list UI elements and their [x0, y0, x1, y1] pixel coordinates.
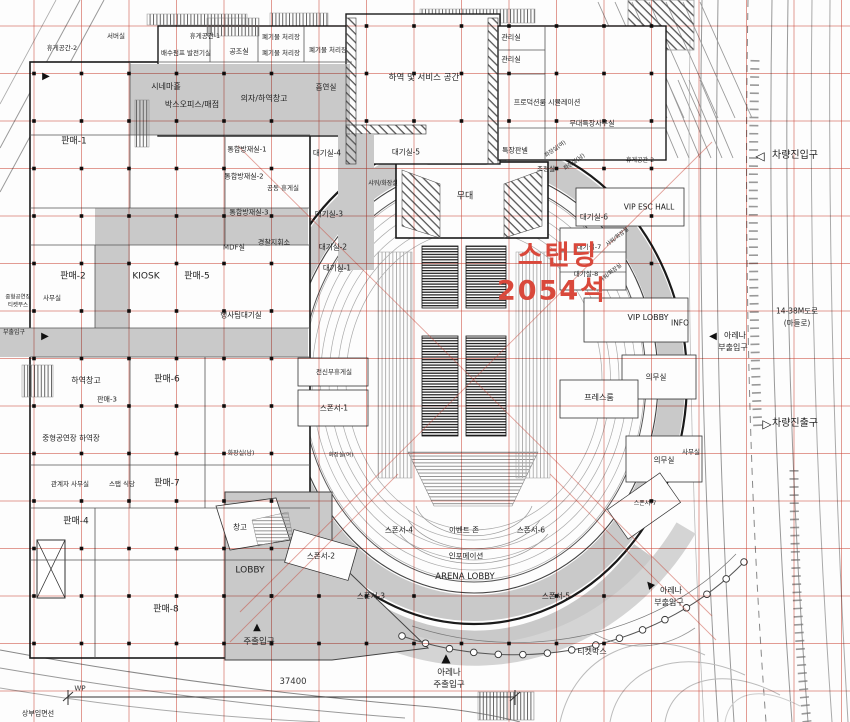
- plan-label: 화장실(여): [329, 453, 354, 459]
- plan-label: 시네마홀: [151, 83, 180, 91]
- plan-label: 휴게공간-2: [626, 158, 654, 164]
- plan-label: 휴게공간-1: [190, 33, 220, 40]
- plan-drawing: [0, 0, 850, 722]
- plan-label: 이벤트 존: [449, 526, 479, 534]
- plan-label: 통합방재실-2: [224, 174, 263, 181]
- plan-label: 대기실-1: [323, 264, 351, 272]
- plan-label: INFO: [671, 319, 689, 327]
- plan-label: 전신부휴게실: [316, 369, 352, 376]
- plan-label: 대기실-6: [580, 213, 608, 221]
- plan-label: 조정실: [537, 166, 555, 173]
- vehicle-entry-arrow-icon: ◁: [755, 150, 764, 162]
- plan-label: 대기실-4: [313, 149, 341, 157]
- plan-label: 티켓부스: [8, 303, 28, 309]
- standing-line2: 2054석: [497, 278, 607, 305]
- plan-label: 샤워/화장실: [368, 181, 398, 187]
- plan-label: 스탭 식당: [109, 481, 135, 488]
- plan-label: 특장판넬: [502, 148, 528, 155]
- dimension-wp-label: WP: [74, 686, 85, 693]
- plan-label: 폐기물 처리장: [262, 34, 300, 41]
- plan-label: 화장실(남): [228, 451, 255, 457]
- plan-label: 판매-4: [63, 518, 89, 527]
- dimension-value: 37400: [279, 678, 306, 687]
- plan-label: VIP LOBBY: [627, 314, 668, 322]
- plan-label: 스폰서-5: [542, 592, 570, 600]
- plan-label: 박스오피스/매점: [165, 101, 219, 109]
- plan-label: 하역 및 서비스 공간: [389, 74, 460, 83]
- plan-label: 사무실: [43, 295, 61, 302]
- plan-label: 휴게공간-2: [47, 45, 77, 52]
- plan-label: 사무실: [682, 449, 700, 456]
- plan-label: 판매-2: [60, 273, 86, 282]
- plan-label: 배수펌프 발전기실: [161, 50, 211, 57]
- plan-label: 차량진입구: [772, 151, 818, 161]
- plan-label: 부출입구: [654, 599, 683, 607]
- plan-label: 중형공연장 하역장: [42, 434, 100, 442]
- side-entrance-arrow-icon: ▶: [42, 72, 50, 82]
- plan-label: 부출입구: [3, 330, 25, 336]
- plan-label: 행사팀대기실: [220, 311, 261, 319]
- plan-label: 대기실-5: [392, 148, 420, 156]
- plan-label: 흡연실: [316, 83, 337, 91]
- plan-label: 판매-6: [154, 376, 180, 385]
- plan-label: 대기실-2: [319, 243, 347, 251]
- plan-label: 공동 휴게실: [267, 185, 299, 192]
- plan-label: 아레나: [660, 587, 682, 595]
- plan-label: 차량진출구: [772, 419, 818, 429]
- plan-label: (마들로): [784, 319, 811, 327]
- plan-label: 통합방재실-1: [227, 147, 266, 154]
- plan-label: 판매-1: [61, 138, 87, 147]
- plan-label: 의무실: [654, 456, 675, 464]
- plan-label: 스폰서-7: [634, 501, 657, 507]
- plan-label: 스폰서-4: [385, 526, 413, 534]
- plan-label: MDF실: [223, 245, 245, 252]
- plan-label: 관리실: [501, 57, 520, 64]
- plan-label: 서버실: [107, 33, 125, 40]
- plan-label: 중형공연장: [5, 295, 30, 301]
- plan-label: 프레스룸: [584, 394, 613, 402]
- plan-label: 스폰서-3: [357, 592, 385, 600]
- plan-label: 스폰서-6: [517, 526, 545, 534]
- plan-label: 관리실: [501, 35, 520, 42]
- arena-side-entrance-arrow-icon: ◀: [709, 332, 717, 342]
- plan-label: 판매-7: [154, 480, 180, 489]
- plan-label: KIOSK: [132, 273, 159, 282]
- plan-label: 스폰서-2: [307, 552, 335, 560]
- plan-label: 상부입면선: [22, 711, 54, 718]
- plan-label: 인포메이션: [449, 552, 484, 560]
- arena-main-entrance-arrow-icon: ▲: [441, 652, 450, 664]
- plan-label: 판매-5: [184, 273, 210, 282]
- plan-label: LOBBY: [235, 567, 264, 576]
- plan-label: 통합방재실-3: [229, 210, 268, 217]
- plan-label: 폐기물 처리장: [309, 47, 347, 54]
- plan-label: 아레나: [437, 669, 460, 678]
- plan-label: 아레나: [724, 332, 746, 340]
- plan-label: ARENA LOBBY: [435, 573, 494, 582]
- main-entrance-arrow-icon: ▲: [253, 623, 261, 633]
- plan-label: 무대특장사무실: [569, 121, 614, 128]
- plan-label: VIP ESC HALL: [624, 203, 675, 211]
- plan-label: 의자/하역창고: [241, 95, 288, 103]
- plan-label: 대기실-3: [315, 210, 343, 218]
- plan-label: 창고: [233, 523, 247, 531]
- plan-label: 공조실: [229, 49, 248, 56]
- plan-label: 티켓박스: [577, 648, 606, 656]
- side-entrance-arrow-icon: ▶: [41, 332, 49, 342]
- plan-label: 프로덕션룸 시뮬레이션: [514, 100, 581, 107]
- plan-label: 주출입구: [433, 681, 464, 690]
- plan-label: 하역창고: [71, 377, 100, 385]
- arena-floorplan: 휴게공간-2서버실휴게공간-1배수펌프 발전기실공조실폐기물 처리장폐기물 처리…: [0, 0, 850, 722]
- plan-label: 스폰서-1: [320, 404, 348, 412]
- vehicle-exit-arrow-icon: ▷: [762, 418, 771, 430]
- plan-label: 판매-3: [97, 397, 117, 404]
- plan-label: 판매-8: [153, 606, 179, 615]
- plan-label: 주출입구: [243, 638, 274, 647]
- plan-label: 경찰지휘소: [258, 240, 290, 247]
- standing-line1: 스탠딩: [518, 243, 599, 270]
- plan-label: 무대: [457, 193, 474, 202]
- plan-label: 의무실: [646, 373, 667, 381]
- plan-label: 14-38M도로: [776, 307, 818, 315]
- plan-label: 부출입구: [718, 344, 747, 352]
- plan-label: 관계자 사무실: [51, 481, 89, 488]
- plan-label: 폐기물 처리장: [262, 50, 300, 57]
